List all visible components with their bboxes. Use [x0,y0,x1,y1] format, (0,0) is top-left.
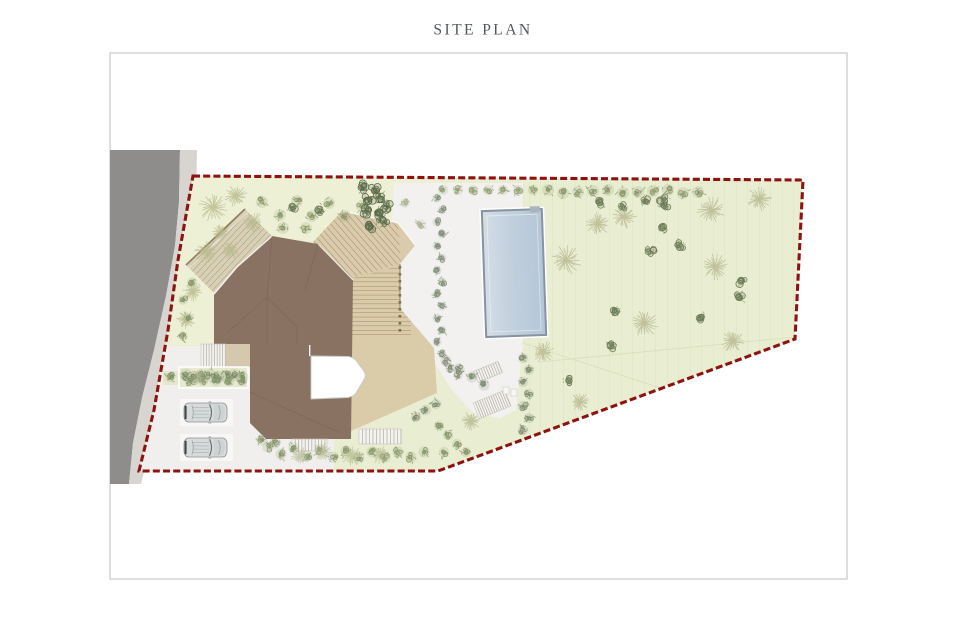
svg-text:SITE PLAN: SITE PLAN [433,22,532,39]
